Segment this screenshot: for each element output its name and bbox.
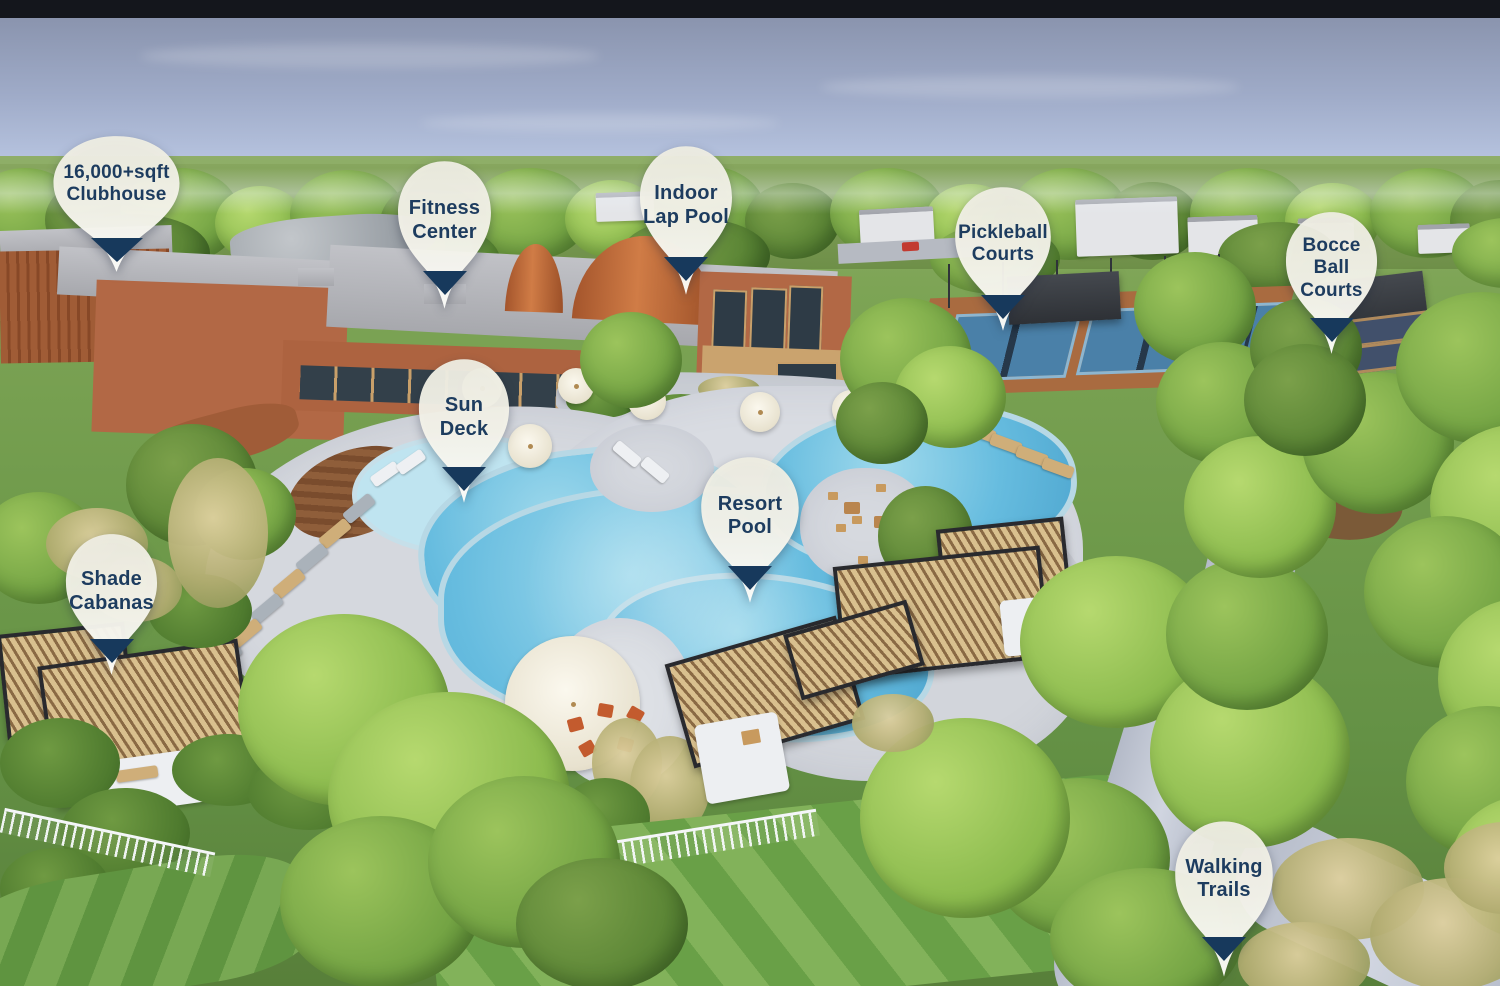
atmospheric-haze [0, 168, 1500, 214]
pin-label: IndoorLap Pool [636, 182, 736, 229]
pin-indoor-lap-pool[interactable]: IndoorLap Pool [636, 144, 736, 297]
tree [580, 312, 682, 408]
pool-chair [876, 484, 886, 492]
tree [1166, 558, 1328, 710]
umbrella [508, 424, 552, 468]
amenity-map: 16,000+sqftClubhouse FitnessCenter Indoo… [0, 18, 1500, 986]
pin-shade-cabanas[interactable]: ShadeCabanas [62, 532, 161, 677]
pin-label: ResortPool [697, 493, 803, 540]
pin-arrow-icon [91, 238, 143, 262]
pool-chair [828, 492, 838, 500]
grass-tuft [168, 458, 268, 608]
pool-chair [852, 516, 862, 524]
rooftop-unit [298, 268, 334, 286]
pin-arrow-icon [728, 566, 772, 590]
pin-label: 16,000+sqftClubhouse [48, 162, 185, 207]
pin-clubhouse[interactable]: 16,000+sqftClubhouse [48, 134, 185, 274]
pin-resort-pool[interactable]: ResortPool [697, 455, 803, 605]
grass-tuft [852, 694, 934, 752]
pin-label: FitnessCenter [394, 197, 495, 244]
pool-table [844, 502, 860, 514]
fence-post [948, 264, 950, 308]
pin-arrow-icon [1310, 318, 1354, 342]
pin-fitness-center[interactable]: FitnessCenter [394, 159, 495, 311]
pin-arrow-icon [442, 467, 486, 491]
pin-label: ShadeCabanas [62, 568, 161, 615]
cloud [140, 44, 600, 68]
chair [597, 703, 614, 718]
car [902, 242, 919, 252]
pin-label: SunDeck [415, 394, 513, 441]
tree [836, 382, 928, 464]
pin-arrow-icon [423, 271, 467, 295]
pin-label: PickleballCourts [951, 222, 1055, 267]
umbrella [740, 392, 780, 432]
pin-arrow-icon [90, 639, 134, 663]
cloud [820, 76, 1240, 98]
pool-chair [836, 524, 846, 532]
tree [516, 858, 688, 986]
pin-pickleball-courts[interactable]: PickleballCourts [951, 185, 1055, 333]
cabana-wall [694, 711, 791, 804]
cloud [420, 114, 780, 132]
tree [1244, 344, 1366, 456]
pin-arrow-icon [1202, 937, 1246, 961]
pin-bocce-ball-courts[interactable]: BocceBallCourts [1282, 210, 1381, 356]
pin-sun-deck[interactable]: SunDeck [415, 357, 513, 505]
pin-arrow-icon [981, 295, 1025, 319]
pin-walking-trails[interactable]: WalkingTrails [1171, 819, 1277, 979]
pin-label: WalkingTrails [1171, 856, 1277, 903]
pin-arrow-icon [664, 257, 708, 281]
pin-label: BocceBallCourts [1282, 235, 1381, 302]
